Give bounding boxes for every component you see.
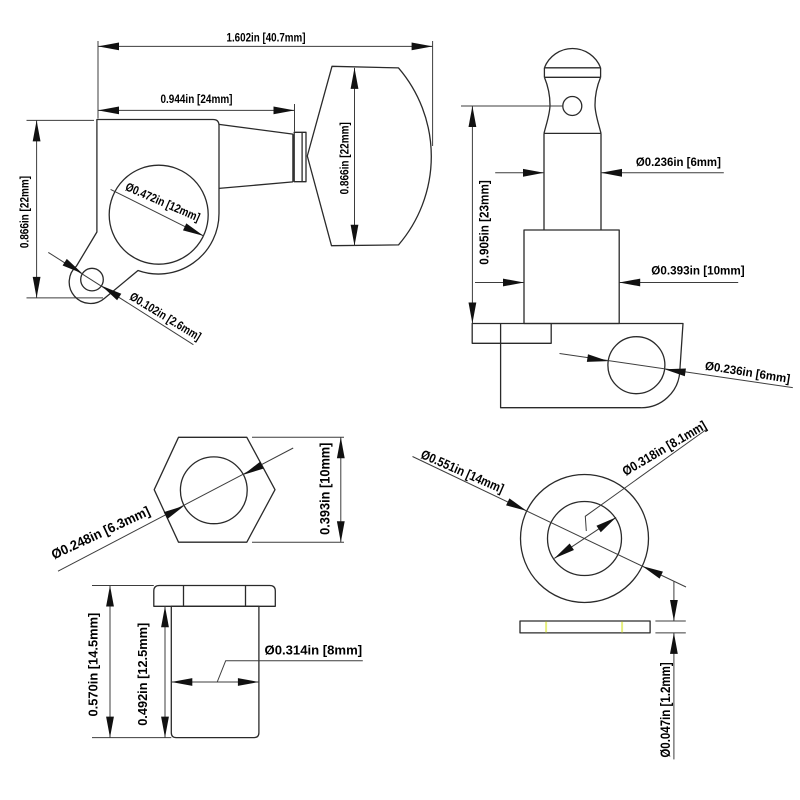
svg-text:Ø0.047in [1.2mm]: Ø0.047in [1.2mm] [658, 662, 673, 757]
svg-text:0.866in [22mm]: 0.866in [22mm] [18, 176, 32, 248]
svg-text:0.866in [22mm]: 0.866in [22mm] [338, 122, 352, 194]
svg-text:0.905in [23mm]: 0.905in [23mm] [478, 180, 492, 265]
svg-text:0.393in [10mm]: 0.393in [10mm] [318, 443, 333, 535]
svg-text:0.944in [24mm]: 0.944in [24mm] [161, 92, 233, 106]
svg-text:0.492in [12.5mm]: 0.492in [12.5mm] [135, 623, 150, 726]
svg-text:1.602in [40.7mm]: 1.602in [40.7mm] [227, 30, 306, 44]
svg-text:Ø0.314in [8mm]: Ø0.314in [8mm] [265, 643, 363, 658]
svg-text:Ø0.236in [6mm]: Ø0.236in [6mm] [636, 155, 721, 169]
svg-text:Ø0.393in [10mm]: Ø0.393in [10mm] [651, 263, 744, 277]
svg-text:0.570in [14.5mm]: 0.570in [14.5mm] [86, 613, 101, 717]
